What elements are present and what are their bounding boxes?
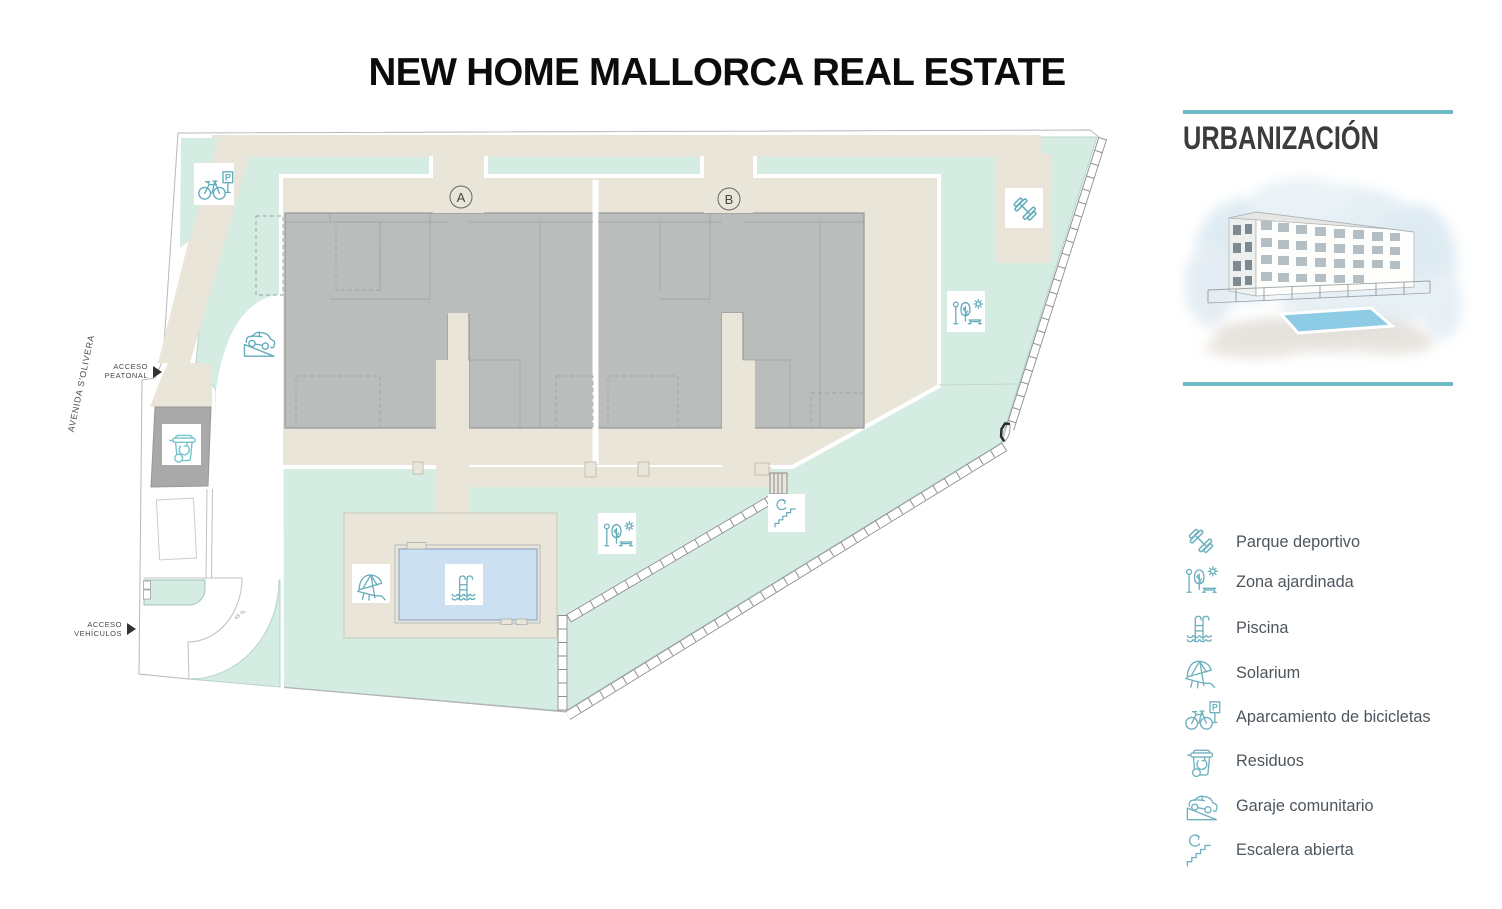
- svg-text:Parque deportivo: Parque deportivo: [1236, 533, 1360, 551]
- svg-text:Solarium: Solarium: [1236, 664, 1300, 682]
- svg-text:Escalera abierta: Escalera abierta: [1236, 841, 1355, 859]
- svg-text:Garaje comunitario: Garaje comunitario: [1236, 797, 1374, 815]
- svg-text:Piscina: Piscina: [1236, 619, 1289, 637]
- svg-text:Aparcamiento de bicicletas: Aparcamiento de bicicletas: [1236, 708, 1431, 726]
- svg-text:URBANIZACIÓN: URBANIZACIÓN: [1183, 120, 1379, 156]
- svg-text:Zona ajardinada: Zona ajardinada: [1236, 573, 1355, 591]
- svg-text:Residuos: Residuos: [1236, 752, 1304, 770]
